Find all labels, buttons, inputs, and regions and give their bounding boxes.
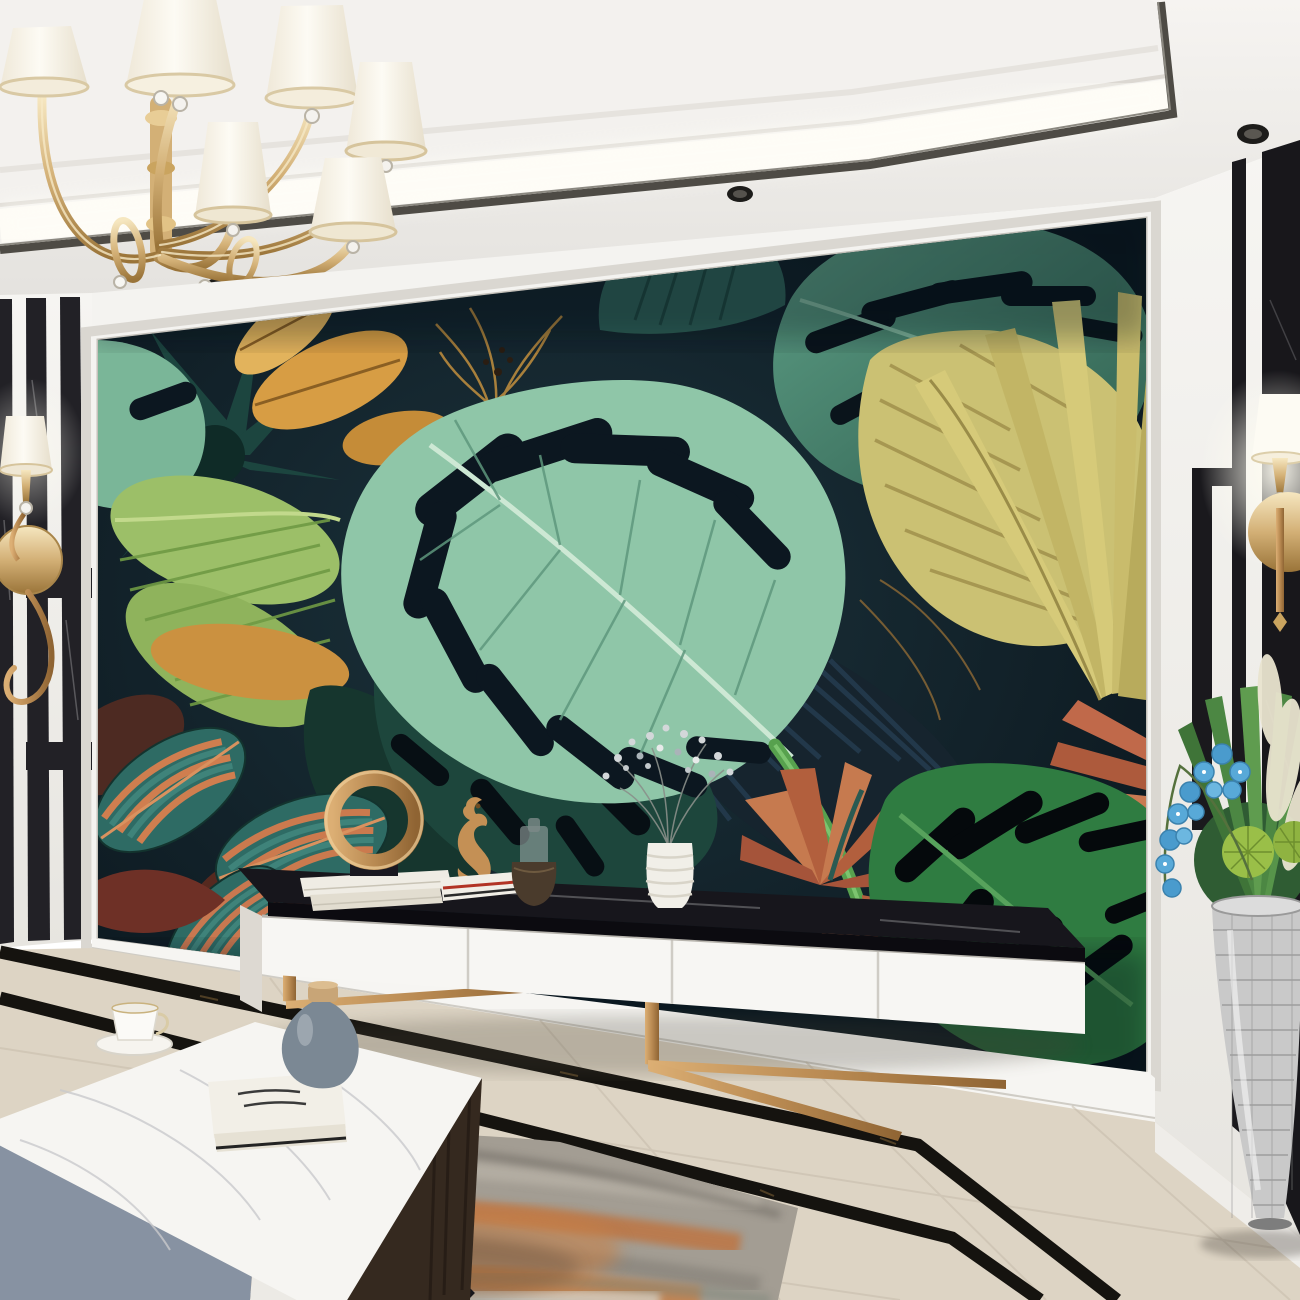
lamp-shade	[346, 62, 426, 172]
crystal-drop	[347, 241, 359, 253]
sconce-rod	[1276, 508, 1284, 612]
ribbed-vase	[646, 843, 693, 908]
spotlight	[727, 186, 753, 202]
vase-highlight	[297, 1014, 313, 1046]
crystal-drop	[305, 109, 319, 123]
crystal-drop	[227, 224, 239, 236]
crystal-drop	[173, 97, 187, 111]
lamp-shade	[310, 157, 396, 253]
sconce-shade	[0, 416, 52, 470]
planter-rim	[1212, 896, 1300, 916]
lamp-shade	[126, 0, 234, 111]
cup-rim	[112, 1003, 158, 1013]
sconce-crystal	[20, 502, 32, 514]
planter-foot	[1248, 1218, 1292, 1230]
living-room-scene	[0, 0, 1300, 1300]
console-left-side	[240, 905, 262, 1012]
spotlight	[1237, 124, 1269, 144]
sconce-shade	[1252, 394, 1300, 458]
lamp-shade	[266, 5, 358, 123]
lamp-shade	[195, 122, 271, 236]
scene-render	[0, 0, 1300, 1300]
